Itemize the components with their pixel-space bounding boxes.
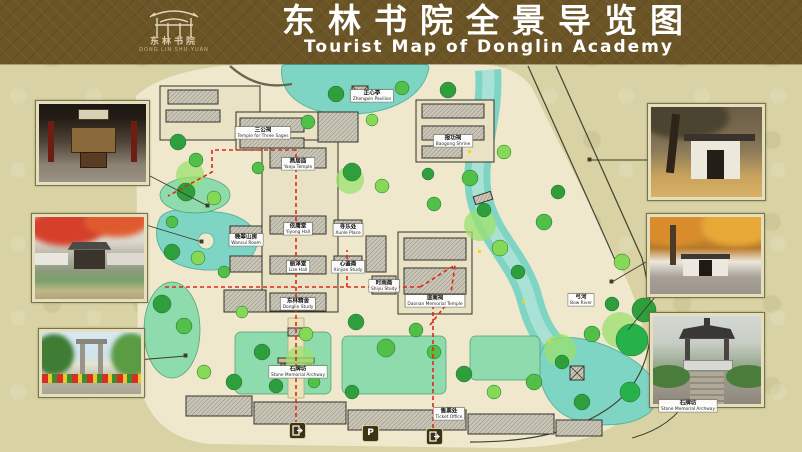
map-label-stone-archway: 石牌坊Stone Memorial Archway: [269, 365, 328, 378]
archway-logo-icon: [148, 4, 200, 38]
photo-caption-stone-archway: 石牌坊Stone Memorial Archway: [659, 399, 718, 412]
pavilion-roof-graphic: [68, 242, 112, 250]
photo-autumn-gate: [646, 213, 765, 298]
map-label-daonan-temple: 道南祠Daonan Memorial Temple: [405, 294, 465, 307]
map-label-ticket-office: 售票处Ticket Office: [433, 407, 465, 420]
map-label-baogong-shrine: 报功祠Baogong Shrine: [433, 134, 472, 147]
pavilion-roof-graphic: [679, 325, 735, 339]
parking-icon: P: [362, 425, 379, 442]
header-banner: 东林书院 DONG LIN SHU YUAN 东林书院全景导览图 Tourist…: [0, 0, 802, 64]
map-label-xinjian-study: 心鉴斋Xinjian Study: [331, 260, 365, 273]
tree-graphic: [111, 333, 141, 376]
doorway-graphic: [707, 150, 725, 179]
entrance-exit-icon: [289, 422, 306, 439]
table-graphic: [80, 152, 108, 168]
hedge-graphic: [653, 365, 690, 388]
map-label-zhengxin-pavilion: 正心亭Zhengxin Pavilion: [350, 89, 393, 102]
logo-english-text: DONG LIN SHU YUAN: [136, 47, 212, 54]
photo-maple-pavilion: [31, 213, 148, 303]
entrance-exit-icon: [426, 428, 443, 445]
photo-hall-interior: [35, 100, 150, 186]
map-label-shiyu-study: 时雨斋Shiyu Study: [369, 279, 400, 292]
map-label-lize-hall: 丽泽堂Lize Hall: [286, 260, 309, 273]
photo-memorial-pavilion: [649, 312, 765, 408]
roof-finial-graphic: [704, 318, 710, 327]
tree-graphic: [42, 334, 74, 375]
roofline-graphic: [684, 134, 755, 141]
map-label-xunle-place: 寻乐处Xunle Place: [333, 223, 363, 236]
red-column-graphic: [48, 121, 54, 162]
railing-graphic: [683, 360, 733, 371]
hedge-graphic: [726, 365, 761, 388]
archway-post-graphic: [98, 344, 103, 374]
doorway-graphic: [699, 260, 712, 275]
flower-bed-graphic: [42, 374, 141, 383]
photo-archway-garden: [38, 328, 145, 398]
tree-trunk-graphic: [670, 225, 676, 265]
tourist-map-poster: 东林书院 DONG LIN SHU YUAN 东林书院全景导览图 Tourist…: [0, 0, 802, 452]
map-label-wancui-room: 晚翠山房Wancui Room: [229, 233, 263, 246]
title-chinese: 东林书院全景导览图: [226, 3, 752, 39]
photo-white-gate: [647, 103, 766, 201]
title-english: Tourist Map of Donglin Academy: [226, 39, 752, 56]
map-label-yiyong-hall: 依庸堂Yiyong Hall: [283, 222, 312, 235]
white-wall-graphic: [107, 253, 144, 264]
white-wall-graphic: [35, 253, 68, 264]
map-label-sangong-shrine: 三公祠Temple for Three Sages: [235, 126, 291, 139]
autumn-foliage-graphic: [650, 217, 708, 246]
pavilion-body-graphic: [74, 250, 105, 270]
map-label-donglin-study: 东林精舍Donglin Study: [280, 297, 316, 310]
red-column-graphic: [131, 121, 137, 162]
autumn-foliage-graphic: [701, 217, 761, 246]
map-label-bow-river: 弓河Bow River: [568, 293, 595, 306]
map-label-yanju-temple: 燕居庙Yanju Temple: [281, 157, 314, 170]
logo-chinese-text: 东林书院: [136, 38, 212, 47]
archway-post-graphic: [80, 344, 85, 374]
plaque-graphic: [78, 109, 110, 120]
poster-title: 东林书院全景导览图 Tourist Map of Donglin Academy: [226, 0, 752, 64]
screen-graphic: [71, 127, 116, 152]
academy-logo: 东林书院 DONG LIN SHU YUAN: [136, 4, 212, 60]
